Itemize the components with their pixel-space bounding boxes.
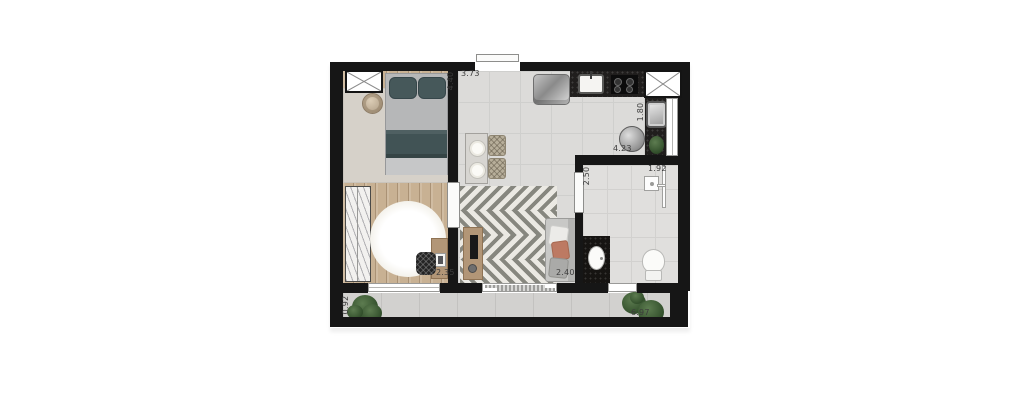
office-chair (416, 252, 436, 275)
console-speaker-icon (468, 264, 477, 273)
dim-label: 6.97 (631, 309, 650, 317)
burner-icon (626, 86, 633, 93)
shaft-duct-right (644, 70, 682, 98)
floor-plan: 3.73 4.40 1.80 4.23 1.92 2.50 2.35 2.40 … (330, 62, 690, 328)
service-window (666, 98, 678, 156)
dining-chair (488, 135, 506, 156)
balcony-sliding-door (482, 283, 557, 292)
bathroom-window (608, 283, 637, 292)
sliding-door-track (497, 288, 555, 291)
bed-sheet (386, 158, 447, 175)
vanity-sink (588, 246, 605, 270)
shaft-duct-left (345, 70, 383, 93)
kitchen-sink (578, 74, 604, 94)
x-cross-icon (646, 72, 680, 96)
dim-label: 2.35 (436, 269, 455, 277)
fridge (533, 74, 570, 105)
laundry-sink (646, 101, 667, 128)
bed-pillow-right (418, 77, 446, 99)
dim-label: 1.92 (648, 165, 667, 173)
entry-door (476, 54, 519, 62)
burner-icon (626, 78, 634, 86)
toilet (642, 249, 666, 281)
shower-arm-icon (657, 184, 666, 187)
burner-icon (614, 86, 621, 93)
burner-icon (614, 78, 622, 86)
x-cross-icon (347, 72, 381, 91)
cooktop (611, 75, 638, 94)
bedroom-window (368, 283, 440, 292)
bed-blanket (386, 130, 447, 158)
dim-label: 1.80 (637, 96, 645, 128)
toilet-tank (645, 270, 662, 281)
tv-console (463, 227, 483, 280)
wall-balcony-bottom (330, 317, 688, 327)
counter-plant-icon (649, 136, 664, 154)
bed (385, 73, 448, 175)
dim-label: 3.73 (461, 70, 480, 78)
floor-plan-page: 3.73 4.40 1.80 4.23 1.92 2.50 2.35 2.40 … (0, 0, 1024, 400)
dim-label: 0.92 (342, 289, 350, 321)
wall-bathroom-left (575, 212, 583, 283)
rug-band (460, 186, 557, 210)
window-mullion (369, 287, 439, 288)
dim-label: 2.40 (556, 269, 575, 277)
bedroom-sliding-door (447, 182, 460, 228)
wall-bathroom-top (575, 155, 690, 165)
pouf-side-table (362, 93, 383, 114)
wall (330, 62, 343, 327)
faucet-icon (600, 257, 603, 260)
dim-label: 4.23 (613, 145, 632, 153)
wall-bottom (557, 283, 608, 293)
wall-bottom (440, 283, 482, 293)
plate (469, 162, 486, 179)
dim-label: 2.50 (583, 160, 591, 192)
dim-label: 4.40 (447, 65, 455, 97)
tv (470, 235, 478, 259)
wardrobe (345, 186, 371, 282)
dining-chair (488, 158, 506, 179)
laptop (435, 253, 446, 267)
wardrobe-rail (357, 187, 358, 281)
balcony-floor (343, 293, 670, 319)
faucet-icon (590, 71, 592, 79)
bed-pillow-left (389, 77, 417, 99)
window-mullion (672, 99, 673, 155)
shower-nozzle (650, 182, 654, 186)
plate (469, 140, 486, 157)
laptop-screen (438, 256, 443, 264)
entry-opening (475, 62, 520, 71)
